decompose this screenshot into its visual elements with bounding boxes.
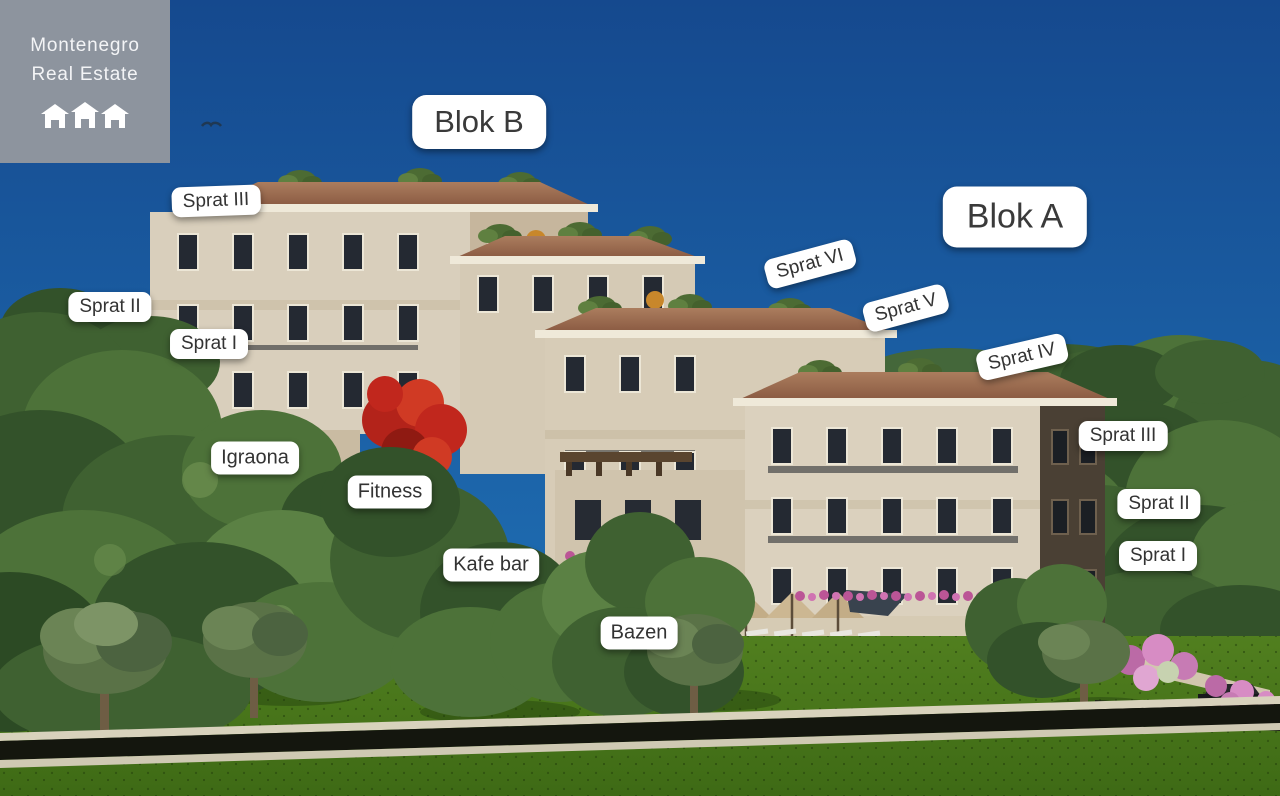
label-sprat-iii-left: Sprat III (171, 184, 261, 217)
label-bazen: Bazen (601, 617, 678, 650)
label-sprat-ii-right: Sprat II (1117, 489, 1200, 519)
brand-name-line2: Real Estate (31, 61, 138, 90)
three-houses-icon (40, 101, 130, 131)
label-sprat-i-right: Sprat I (1119, 541, 1197, 571)
label-blok-b: Blok B (412, 95, 546, 149)
brand-logo: Montenegro Real Estate (0, 0, 170, 163)
building-render-illustration (0, 0, 1280, 796)
label-blok-a: Blok A (943, 187, 1087, 248)
label-sprat-iii-right: Sprat III (1079, 421, 1168, 451)
real-estate-render-page: Montenegro Real Estate Blok B Blok A Spr… (0, 0, 1280, 796)
label-kafe-bar: Kafe bar (443, 549, 539, 582)
label-fitness: Fitness (348, 476, 432, 509)
label-igraona: Igraona (211, 442, 299, 475)
label-sprat-i-left: Sprat I (170, 329, 248, 359)
brand-name-line1: Montenegro (30, 32, 139, 61)
label-sprat-ii-left: Sprat II (68, 292, 151, 322)
